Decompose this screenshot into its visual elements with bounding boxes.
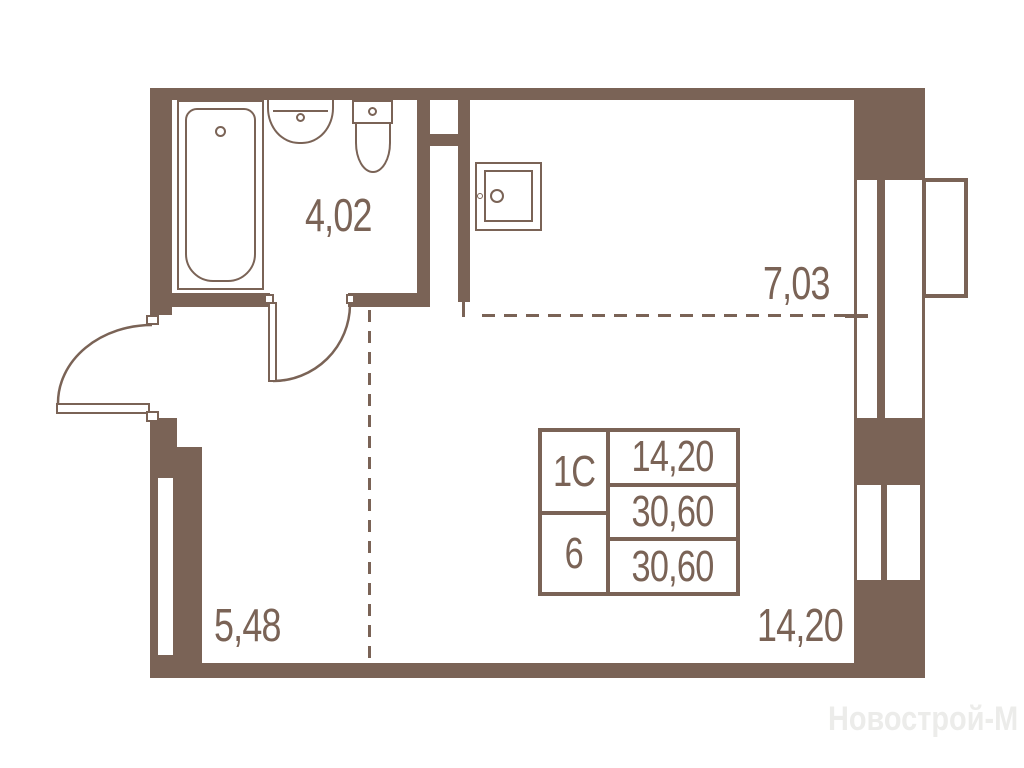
info-table-right-column: 14,20 30,60 30,60 xyxy=(610,432,736,592)
entrance-door-leaf xyxy=(56,403,150,414)
total-area-cell-2: 30,60 xyxy=(610,537,736,592)
bathroom-door-leaf xyxy=(268,302,277,382)
hallway-area-label: 5,48 xyxy=(214,602,281,648)
entrance-door-jamb-bottom xyxy=(146,411,159,422)
living-area-cell: 14,20 xyxy=(610,432,736,483)
bathroom-door-arc xyxy=(273,305,350,381)
developer-watermark: Новострой-М xyxy=(828,702,1018,736)
washbasin-faucet xyxy=(296,113,305,122)
bathtub-drain xyxy=(215,126,226,137)
living-area-label: 14,20 xyxy=(757,602,843,648)
entrance-door-jamb-top xyxy=(146,315,159,325)
door-arcs xyxy=(0,0,1024,768)
toilet-flush-button xyxy=(368,107,377,116)
apartment-type-cell: 1С xyxy=(542,432,606,515)
kitchen-sink-drain xyxy=(490,189,504,203)
info-table-left-column: 1С 6 xyxy=(542,432,610,592)
kitchen-area-label: 7,03 xyxy=(763,260,830,306)
floor-plan: 4,02 7,03 5,48 14,20 1С 6 14,20 30,60 30… xyxy=(0,0,1024,768)
apartment-number-cell: 6 xyxy=(542,515,606,592)
entrance-door-arc xyxy=(58,325,152,403)
bathroom-door-jamb-right xyxy=(346,294,355,304)
total-area-cell: 30,60 xyxy=(610,483,736,538)
kitchen-sink-tap xyxy=(477,193,483,199)
bathroom-area-label: 4,02 xyxy=(305,192,372,238)
washbasin-rim-line xyxy=(273,110,328,112)
apartment-info-table: 1С 6 14,20 30,60 30,60 xyxy=(538,428,740,596)
